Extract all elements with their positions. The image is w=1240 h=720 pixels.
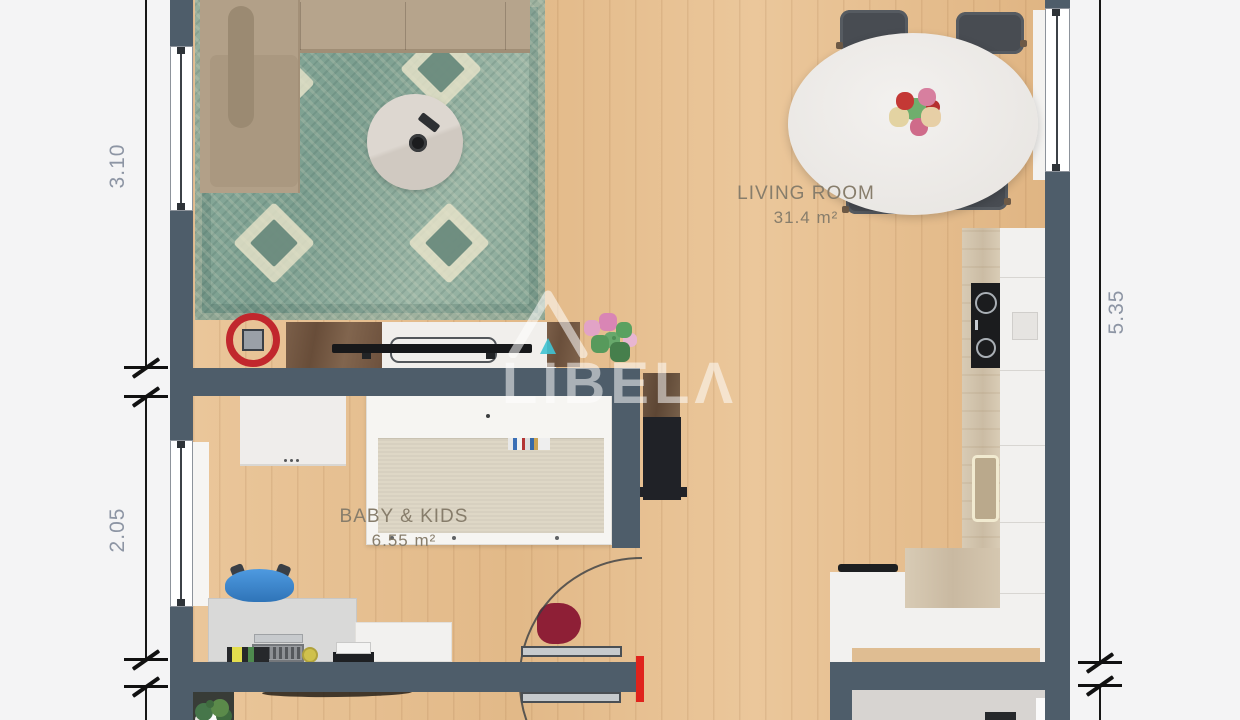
sofa-seam bbox=[505, 2, 506, 50]
living-room-label: LIVING ROOM 31.4 m² bbox=[696, 183, 916, 228]
flower-centerpiece bbox=[916, 108, 922, 114]
media-cabinet-walnut bbox=[547, 322, 580, 367]
wall-bathroom-left bbox=[830, 662, 852, 720]
tv-foot bbox=[362, 353, 371, 359]
room-area: 6.55 m² bbox=[294, 531, 514, 551]
smoke-detector-marker bbox=[242, 329, 264, 351]
wall-left bbox=[170, 211, 193, 440]
chair-leg bbox=[1004, 198, 1011, 205]
window-cap bbox=[177, 441, 185, 448]
dimension-line-right bbox=[1099, 0, 1101, 663]
cabinet-handle bbox=[838, 564, 898, 572]
window-cap bbox=[177, 599, 185, 606]
sofa-cushion bbox=[210, 55, 298, 187]
burner bbox=[976, 338, 996, 358]
dimension-label-2-05: 2.05 bbox=[106, 500, 130, 560]
dimension-line-right bbox=[1099, 686, 1101, 720]
chair-leg bbox=[1020, 40, 1027, 47]
wall-bottom bbox=[170, 662, 637, 692]
desk-chair bbox=[225, 569, 294, 602]
baby-kids-room-label: BABY & KIDS 6.55 m² bbox=[294, 506, 514, 551]
door-leaf-red bbox=[636, 656, 644, 702]
pink-plant bbox=[612, 336, 616, 340]
crib-detail bbox=[486, 414, 490, 418]
window-frame bbox=[180, 52, 182, 205]
dimension-line-left bbox=[145, 397, 147, 660]
burner bbox=[975, 292, 997, 314]
wall-right bbox=[1045, 172, 1070, 720]
cabinet-divider bbox=[1000, 593, 1045, 594]
bathroom-item bbox=[985, 712, 1016, 720]
tv bbox=[332, 344, 532, 353]
dimension-label-5-35: 5.35 bbox=[1105, 282, 1129, 342]
desk-cup bbox=[302, 647, 318, 663]
sofa-seam bbox=[300, 2, 301, 50]
window-cap bbox=[177, 47, 185, 54]
window-sill-right bbox=[1033, 10, 1045, 180]
changing-dresser bbox=[240, 394, 346, 466]
red-vase bbox=[537, 603, 581, 644]
dresser-handles bbox=[284, 459, 287, 462]
door-jamb-bottom bbox=[521, 692, 621, 703]
cabinet-divider bbox=[1000, 370, 1045, 371]
floorplan-canvas: 3.10 2.05 5.35 LIVING ROOM 31.4 m² BABY … bbox=[0, 0, 1240, 720]
cabinet-foot bbox=[680, 487, 687, 497]
laptop-screen bbox=[254, 634, 303, 643]
counter-edge bbox=[852, 648, 1040, 662]
cabinet-divider bbox=[1000, 445, 1045, 446]
table-decor bbox=[409, 134, 427, 152]
sofa-pillow bbox=[228, 6, 254, 128]
cooktop-control bbox=[975, 320, 978, 330]
dimension-line-left bbox=[145, 687, 147, 720]
tv-foot bbox=[486, 353, 495, 359]
kitchen-sink bbox=[972, 455, 999, 522]
cabinet-divider bbox=[1000, 277, 1045, 278]
wall-left bbox=[170, 0, 193, 46]
dimension-line-left bbox=[145, 0, 147, 368]
potted-plant bbox=[206, 700, 214, 708]
window-cap bbox=[177, 203, 185, 210]
bathroom-floor bbox=[852, 690, 1045, 720]
room-name: BABY & KIDS bbox=[294, 506, 514, 528]
kitchen-counter-wood bbox=[905, 548, 1000, 608]
crib-toys bbox=[508, 438, 550, 450]
printer bbox=[336, 642, 371, 654]
wall-bathroom-top bbox=[830, 662, 1070, 690]
window-cap bbox=[1052, 164, 1060, 171]
window-frame bbox=[1056, 14, 1058, 166]
wall-right bbox=[1045, 0, 1070, 8]
cabinet-divider bbox=[1000, 522, 1045, 523]
wall-living-baby bbox=[170, 368, 640, 396]
window-cap bbox=[1052, 9, 1060, 16]
sofa-seam bbox=[405, 2, 406, 50]
wall-shelf bbox=[643, 373, 680, 417]
cabinet-panel bbox=[1012, 312, 1038, 340]
room-name: LIVING ROOM bbox=[696, 183, 916, 205]
desk-organizer bbox=[227, 647, 269, 662]
door-jamb-top bbox=[521, 646, 622, 657]
dimension-label-3-10: 3.10 bbox=[106, 136, 130, 196]
tall-black-cabinet bbox=[643, 417, 681, 500]
wardrobe-sill bbox=[193, 442, 209, 606]
window-frame bbox=[180, 446, 182, 601]
room-area: 31.4 m² bbox=[696, 208, 916, 228]
wall-partition bbox=[612, 368, 640, 548]
